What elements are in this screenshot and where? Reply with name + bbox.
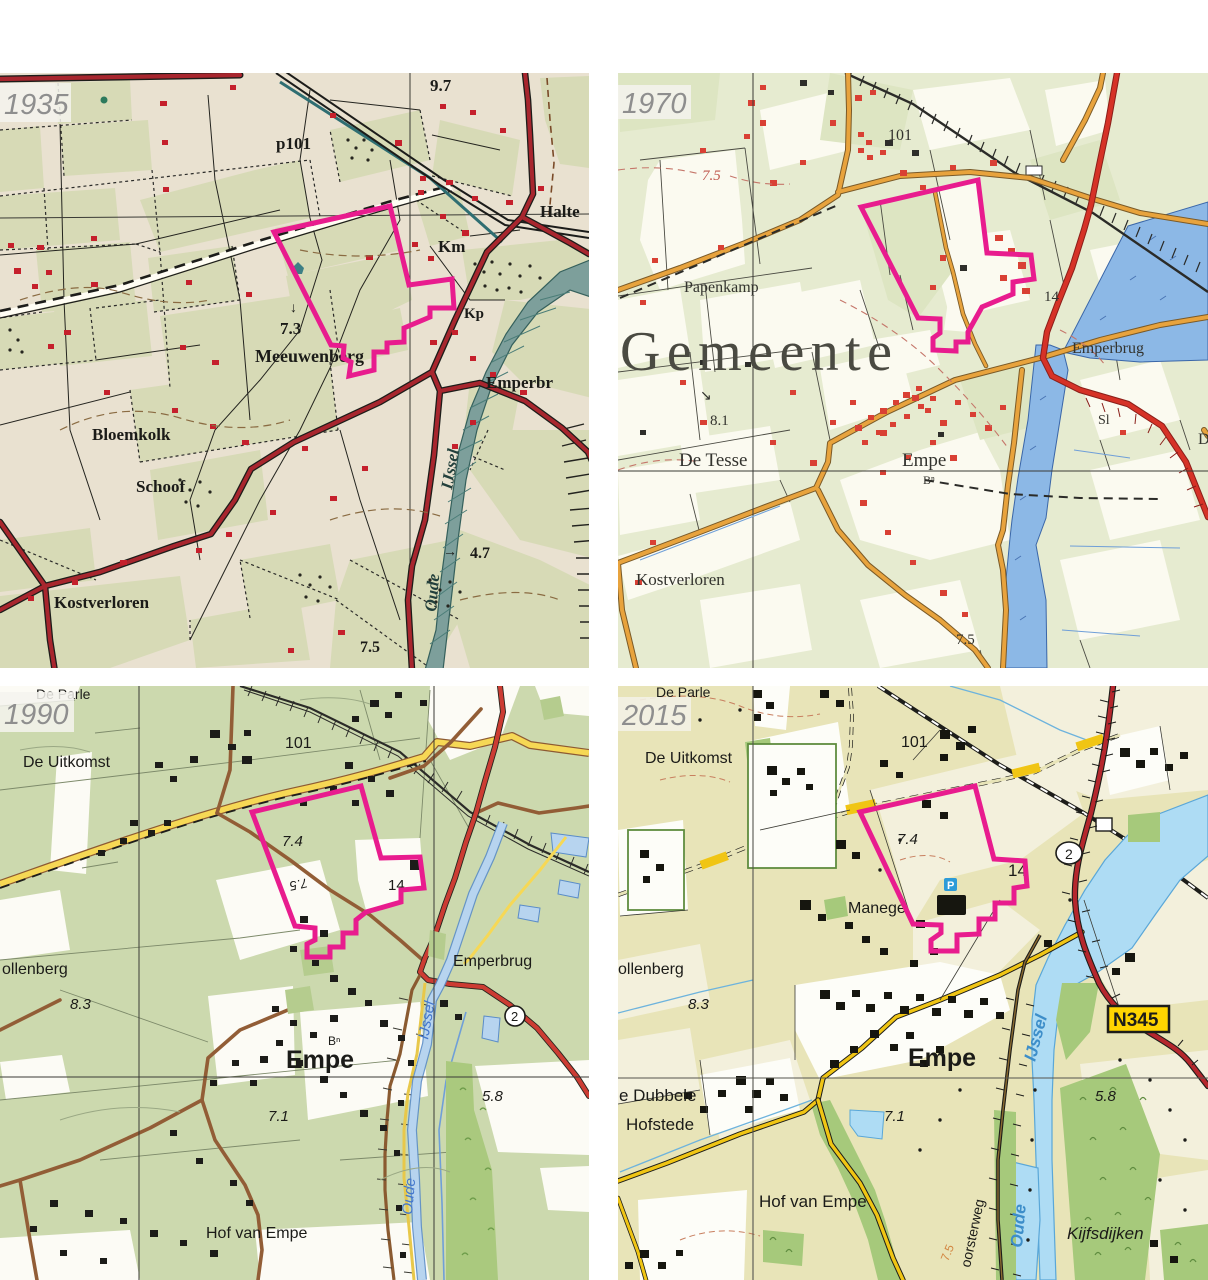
svg-text:P: P — [947, 880, 954, 892]
svg-text:7.5: 7.5 — [956, 632, 975, 648]
svg-text:Emperbrug: Emperbrug — [453, 953, 532, 970]
svg-text:7.4: 7.4 — [282, 833, 303, 850]
svg-text:N345: N345 — [1113, 1010, 1159, 1031]
svg-text:Km: Km — [438, 237, 465, 256]
svg-text:Schoof: Schoof — [136, 477, 185, 496]
svg-text:Sl: Sl — [1098, 413, 1110, 428]
svg-text:4.7: 4.7 — [470, 545, 490, 562]
svg-text:ollenberg: ollenberg — [618, 961, 684, 978]
svg-text:p101: p101 — [276, 134, 311, 153]
svg-text:Oude: Oude — [399, 1177, 419, 1215]
svg-text:Oude: Oude — [1007, 1203, 1030, 1248]
svg-text:7.3: 7.3 — [280, 319, 301, 338]
svg-text:Bⁿ: Bⁿ — [328, 1034, 340, 1048]
svg-text:Kostverloren: Kostverloren — [636, 570, 725, 589]
svg-text:7.1: 7.1 — [268, 1108, 289, 1125]
svg-text:101: 101 — [901, 734, 928, 751]
svg-text:Manege: Manege — [848, 900, 906, 917]
svg-text:101: 101 — [888, 127, 912, 144]
svg-text:D: D — [1198, 431, 1208, 448]
svg-text:Kp: Kp — [464, 306, 484, 322]
svg-text:2: 2 — [511, 1009, 518, 1024]
svg-text:8.3: 8.3 — [688, 996, 710, 1013]
svg-text:Bⁿ: Bⁿ — [923, 473, 935, 487]
svg-text:2015: 2015 — [621, 700, 687, 732]
svg-text:101: 101 — [285, 735, 312, 752]
svg-text:7.4: 7.4 — [897, 831, 918, 848]
svg-text:1990: 1990 — [4, 699, 69, 731]
svg-text:Oude: Oude — [421, 573, 443, 613]
svg-text:7.1: 7.1 — [884, 1108, 905, 1125]
svg-text:Empe: Empe — [908, 1044, 976, 1072]
svg-text:1935: 1935 — [4, 89, 69, 121]
svg-text:Emperbrug: Emperbrug — [1072, 340, 1144, 357]
svg-text:Kijfsdijken: Kijfsdijken — [1067, 1224, 1144, 1243]
svg-text:7.5: 7.5 — [360, 639, 380, 656]
svg-text:→: → — [443, 545, 457, 560]
svg-text:↘: ↘ — [700, 387, 712, 403]
svg-text:De Uitkomst: De Uitkomst — [645, 750, 733, 767]
svg-text:7.5: 7.5 — [702, 168, 721, 184]
svg-text:14: 14 — [1044, 289, 1060, 305]
svg-text:De Tesse: De Tesse — [679, 450, 748, 471]
svg-text:8.1: 8.1 — [710, 413, 729, 429]
svg-text:↓: ↓ — [290, 301, 297, 316]
svg-text:ollenberg: ollenberg — [2, 961, 68, 978]
svg-text:2: 2 — [1065, 846, 1073, 862]
svg-text:5.8: 5.8 — [1095, 1088, 1117, 1105]
svg-text:1970: 1970 — [622, 88, 687, 120]
svg-text:Empe: Empe — [286, 1046, 354, 1074]
svg-text:Hofstede: Hofstede — [626, 1115, 694, 1134]
svg-text:Emperbr: Emperbr — [486, 373, 554, 392]
svg-text:e Dubbele: e Dubbele — [619, 1086, 697, 1105]
svg-text:8.3: 8.3 — [70, 996, 92, 1013]
svg-text:Papenkamp: Papenkamp — [684, 279, 759, 296]
svg-text:De Uitkomst: De Uitkomst — [23, 754, 111, 771]
svg-text:Kostverloren: Kostverloren — [54, 593, 150, 612]
svg-text:9.7: 9.7 — [430, 76, 452, 95]
svg-text:5.8: 5.8 — [482, 1088, 504, 1105]
svg-text:Halte: Halte — [540, 202, 580, 221]
svg-text:Hof van Empe: Hof van Empe — [206, 1225, 307, 1242]
svg-text:Bloemkolk: Bloemkolk — [92, 425, 171, 444]
svg-text:Empe: Empe — [902, 450, 946, 471]
svg-text:Hof van Empe: Hof van Empe — [759, 1192, 867, 1211]
